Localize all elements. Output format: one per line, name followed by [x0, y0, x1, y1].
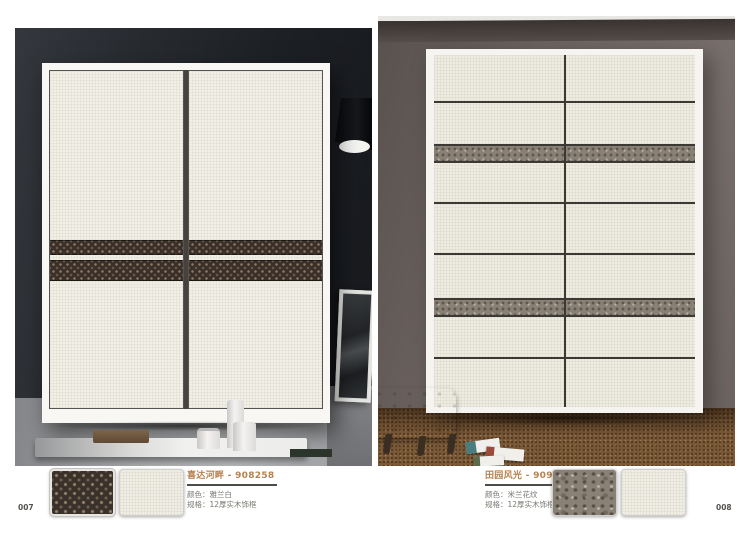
- door-panel: [434, 163, 564, 202]
- left-wardrobe-door-left: [49, 70, 184, 409]
- door-panel: [566, 255, 696, 298]
- right-wardrobe: [426, 49, 703, 413]
- canister: [233, 422, 256, 451]
- door-panel: [434, 204, 564, 253]
- title-underline: [187, 484, 277, 486]
- swatch-dark-monogram: [50, 469, 115, 516]
- ceiling-cornice: [378, 19, 735, 43]
- door-panel: [566, 317, 696, 357]
- swatch-cream-linen-left: [119, 469, 184, 516]
- right-room-photo: [378, 16, 735, 466]
- left-wardrobe-door-right: [188, 70, 323, 409]
- monogram-band-thick: [50, 260, 183, 281]
- left-room-photo: [15, 28, 372, 466]
- left-wardrobe-doors: [49, 70, 323, 409]
- leaning-picture-frame: [335, 289, 372, 402]
- monogram-band-thin: [50, 240, 183, 255]
- left-product-title: 喜达河畔 - 908258: [187, 468, 327, 481]
- magazine: [474, 455, 504, 466]
- floral-band: [566, 146, 696, 161]
- right-wardrobe-door-left: [434, 55, 564, 407]
- picture-artwork: [339, 293, 372, 398]
- door-panel: [566, 103, 696, 144]
- door-panel: [434, 317, 564, 357]
- low-table: [35, 438, 307, 457]
- lamp-light: [339, 140, 370, 153]
- wardrobe-shadow: [52, 421, 320, 431]
- swatch-grey-floral: [552, 469, 617, 516]
- catalog-page: 喜达河畔 - 908258 颜色：雅兰白 规格：12厚实木饰框 田园风光 - 9…: [0, 0, 750, 534]
- left-product-spec: 规格：12厚实木饰框: [187, 500, 327, 510]
- door-panel: [566, 55, 696, 101]
- right-wardrobe-doors: [434, 55, 695, 407]
- left-product-info: 喜达河畔 - 908258 颜色：雅兰白 规格：12厚实木饰框: [187, 468, 327, 510]
- door-panel: [566, 204, 696, 253]
- wooden-tray: [93, 430, 149, 443]
- tufted-ottoman: [378, 388, 456, 438]
- page-number-left: 007: [18, 503, 34, 512]
- floral-band: [566, 300, 696, 315]
- door-panel: [434, 55, 564, 101]
- floral-band: [434, 146, 564, 161]
- door-panel: [434, 255, 564, 298]
- door-panel: [566, 163, 696, 202]
- left-wardrobe: [42, 63, 330, 423]
- door-panel: [566, 359, 696, 407]
- right-wardrobe-door-right: [566, 55, 696, 407]
- ceramic-cup: [197, 428, 220, 449]
- page-number-right: 008: [716, 503, 732, 512]
- swatch-cream-linen-right: [621, 469, 686, 516]
- left-product-color: 颜色：雅兰白: [187, 490, 327, 500]
- monogram-band-thin: [189, 240, 322, 255]
- monogram-band-thick: [189, 260, 322, 281]
- door-panel: [434, 103, 564, 144]
- table-runner: [290, 449, 332, 457]
- floral-band: [434, 300, 564, 315]
